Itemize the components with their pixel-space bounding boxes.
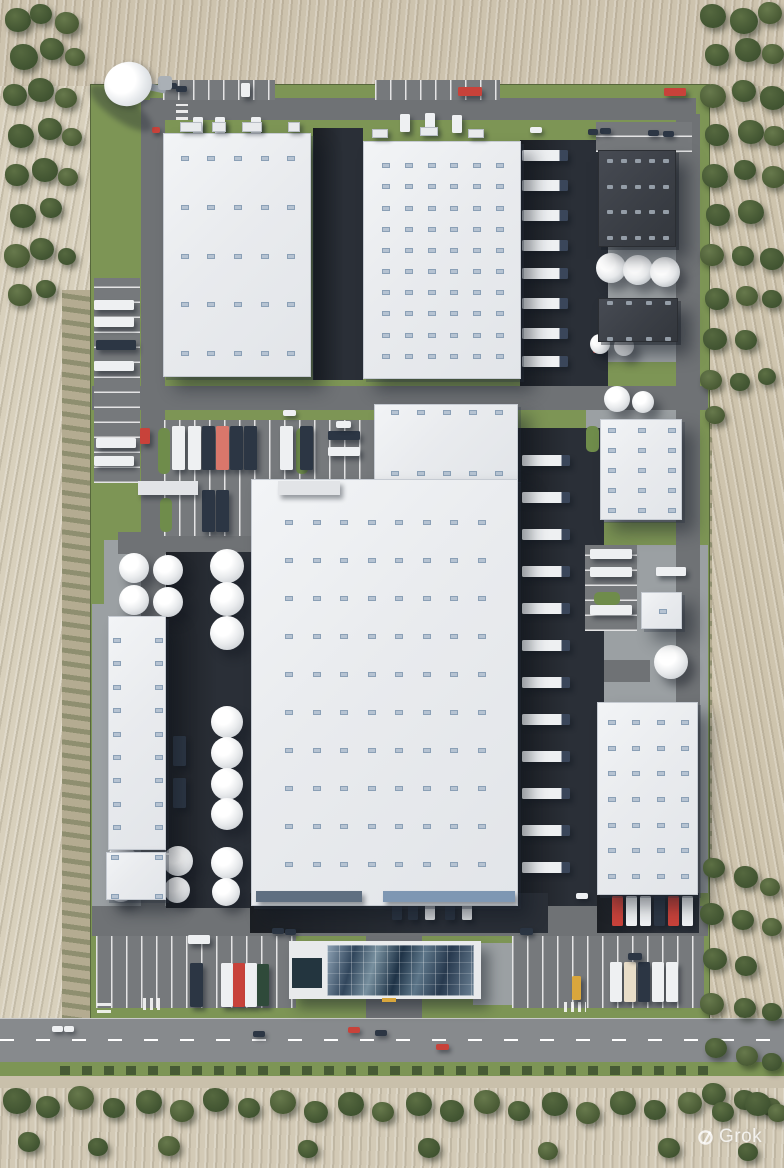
- truck: [241, 83, 250, 97]
- truck: [682, 896, 693, 926]
- skylight: [382, 354, 390, 359]
- skylight: [428, 269, 436, 274]
- truck: [328, 431, 360, 440]
- skylight: [681, 848, 689, 853]
- truck: [216, 426, 229, 470]
- tree: [32, 158, 58, 182]
- tree: [706, 204, 730, 226]
- building-warehouse-central-main: [251, 479, 518, 906]
- skylight: [395, 862, 403, 867]
- skylight: [478, 558, 486, 563]
- car: [520, 928, 533, 935]
- truck: [626, 896, 637, 926]
- skylight: [473, 290, 481, 295]
- skylight: [234, 351, 242, 356]
- car: [663, 131, 674, 137]
- skylight: [285, 710, 293, 715]
- storage-tank: [211, 768, 243, 800]
- skylight: [382, 206, 390, 211]
- skylight: [113, 685, 121, 690]
- building-warehouse-mid-right: [600, 419, 682, 520]
- skylight: [668, 448, 676, 453]
- tree: [304, 1101, 328, 1123]
- skylight: [382, 163, 390, 168]
- grok-ring-icon: [697, 1129, 714, 1146]
- truck: [590, 567, 632, 577]
- skylight: [469, 410, 477, 415]
- skylight: [382, 269, 390, 274]
- tree: [40, 198, 62, 218]
- truck: [96, 340, 136, 350]
- skylight: [450, 248, 458, 253]
- truck: [230, 426, 243, 470]
- dock-apron: [313, 128, 363, 380]
- skylight: [428, 311, 436, 316]
- skylight: [608, 823, 616, 828]
- tree: [736, 286, 758, 306]
- storage-tank: [654, 645, 688, 679]
- tree: [55, 88, 77, 108]
- skylight: [313, 558, 321, 563]
- parking-lot: [596, 122, 692, 152]
- skylight: [423, 520, 431, 525]
- rooftop-vent: [212, 122, 226, 132]
- tree: [703, 328, 727, 350]
- skylight: [428, 184, 436, 189]
- tree: [62, 128, 82, 146]
- tree: [760, 248, 784, 270]
- skylight: [473, 333, 481, 338]
- tree: [88, 1138, 108, 1156]
- skylight: [635, 185, 641, 189]
- storage-tank: [650, 257, 680, 287]
- skylight: [496, 290, 504, 295]
- skylight: [428, 333, 436, 338]
- skylight: [496, 333, 504, 338]
- crosswalk: [176, 104, 188, 120]
- truck: [522, 714, 570, 725]
- skylight: [261, 205, 269, 210]
- tree: [474, 1090, 500, 1114]
- green-island: [158, 428, 170, 474]
- truck: [522, 529, 570, 540]
- skylight: [450, 558, 458, 563]
- tree: [768, 1104, 784, 1122]
- skylight: [417, 471, 425, 476]
- truck: [452, 115, 462, 133]
- skylight: [285, 748, 293, 753]
- tree: [734, 160, 756, 180]
- skylight: [405, 184, 413, 189]
- skylight: [646, 337, 652, 341]
- car: [648, 130, 659, 136]
- storage-tank: [210, 549, 244, 583]
- tree: [644, 1100, 666, 1120]
- tree: [38, 118, 62, 140]
- dock-canopy: [278, 481, 340, 495]
- skylight: [423, 824, 431, 829]
- car: [176, 86, 187, 92]
- skylight: [313, 786, 321, 791]
- dock-canopy: [383, 891, 515, 902]
- skylight: [234, 254, 242, 259]
- tree: [610, 1091, 636, 1115]
- truck: [522, 862, 570, 873]
- skylight: [285, 786, 293, 791]
- building-warehouse-top-left: [163, 133, 311, 377]
- storage-tank: [211, 706, 243, 738]
- tree: [542, 1092, 568, 1116]
- entrance-gate-barrier: [382, 998, 396, 1002]
- skylight: [368, 634, 376, 639]
- tree: [8, 284, 32, 306]
- truck: [610, 962, 622, 1002]
- rooftop-vent: [242, 122, 262, 132]
- tree: [103, 1098, 125, 1118]
- skylight: [478, 672, 486, 677]
- building-warehouse-central-extension: [374, 404, 518, 480]
- skylight: [155, 778, 163, 783]
- skylight: [657, 848, 665, 853]
- skylight: [368, 710, 376, 715]
- skylight: [395, 634, 403, 639]
- entrance-dark-block: [292, 958, 322, 988]
- truck: [654, 896, 665, 926]
- tree: [762, 44, 784, 64]
- skylight: [113, 638, 121, 643]
- skylight: [450, 862, 458, 867]
- tree: [732, 80, 756, 102]
- skylight: [607, 301, 613, 305]
- truck: [190, 963, 203, 1007]
- skylight: [287, 156, 295, 161]
- skylight: [155, 708, 163, 713]
- skylight: [657, 746, 665, 751]
- tree: [30, 4, 52, 24]
- tree: [703, 948, 727, 970]
- tree: [28, 78, 54, 102]
- skylight: [663, 210, 669, 214]
- tree: [238, 1098, 260, 1118]
- skylight: [608, 720, 616, 725]
- car: [530, 127, 542, 133]
- storage-tank: [596, 253, 626, 283]
- skylight: [405, 311, 413, 316]
- skylight: [207, 254, 215, 259]
- skylight: [473, 248, 481, 253]
- storage-tank: [211, 737, 243, 769]
- skylight: [668, 508, 676, 513]
- truck: [590, 605, 632, 615]
- skylight: [340, 748, 348, 753]
- skylight: [113, 802, 121, 807]
- skylight: [313, 672, 321, 677]
- skylight: [155, 638, 163, 643]
- skylight: [663, 236, 669, 240]
- skylight: [405, 227, 413, 232]
- skylight: [495, 410, 503, 415]
- tree: [136, 1090, 162, 1114]
- skylight: [405, 248, 413, 253]
- tree: [758, 2, 782, 24]
- tree: [5, 8, 31, 32]
- tree: [68, 1086, 94, 1110]
- tree: [3, 1088, 31, 1114]
- skylight: [113, 661, 121, 666]
- skylight: [681, 746, 689, 751]
- truck: [522, 268, 568, 279]
- truck: [94, 317, 134, 327]
- truck: [640, 896, 651, 926]
- skylight: [450, 311, 458, 316]
- truck: [221, 963, 233, 1007]
- skylight: [638, 428, 646, 433]
- skylight: [181, 205, 189, 210]
- storage-tank: [163, 846, 193, 876]
- tree: [298, 1140, 318, 1158]
- tree: [3, 84, 27, 106]
- truck: [280, 426, 293, 470]
- storage-tank: [153, 555, 183, 585]
- skylight: [657, 874, 665, 879]
- skylight: [608, 508, 616, 513]
- tree: [705, 124, 729, 146]
- tree: [700, 903, 724, 925]
- truck: [522, 150, 568, 161]
- tree: [8, 124, 34, 148]
- car: [600, 128, 611, 134]
- skylight: [234, 156, 242, 161]
- tree: [732, 246, 754, 266]
- skylight: [478, 710, 486, 715]
- tree: [170, 1100, 194, 1122]
- skylight: [113, 755, 121, 760]
- skylight: [382, 227, 390, 232]
- rooftop-vent: [180, 122, 202, 132]
- skylight: [473, 206, 481, 211]
- dock-canopy: [256, 891, 362, 902]
- skylight: [635, 159, 641, 163]
- skylight: [423, 786, 431, 791]
- tree: [58, 248, 76, 265]
- skylight: [382, 311, 390, 316]
- road-center-line: [0, 1039, 784, 1041]
- tree: [705, 44, 729, 66]
- skylight: [113, 732, 121, 737]
- skylight: [665, 301, 671, 305]
- tree: [508, 1101, 530, 1121]
- tree: [758, 368, 776, 385]
- building-small-building-right: [641, 592, 682, 629]
- tree: [762, 1003, 782, 1021]
- truck: [94, 456, 134, 466]
- skylight: [313, 710, 321, 715]
- tree: [338, 1092, 364, 1116]
- skylight: [368, 672, 376, 677]
- skylight: [428, 290, 436, 295]
- tree: [5, 164, 29, 186]
- truck: [328, 447, 360, 456]
- skylight: [423, 596, 431, 601]
- tree: [406, 1092, 432, 1116]
- skylight: [478, 748, 486, 753]
- skylight: [608, 448, 616, 453]
- skylight: [450, 596, 458, 601]
- skylight: [428, 206, 436, 211]
- skylight: [340, 558, 348, 563]
- tree: [762, 166, 784, 188]
- skylight: [368, 786, 376, 791]
- skylight: [608, 797, 616, 802]
- tree: [700, 4, 726, 28]
- truck: [522, 751, 570, 762]
- public-road: [0, 1018, 784, 1064]
- car: [375, 1030, 387, 1036]
- skylight: [450, 354, 458, 359]
- car: [436, 1044, 449, 1050]
- skylight: [313, 634, 321, 639]
- skylight: [607, 210, 613, 214]
- storage-tank: [632, 391, 654, 413]
- truck: [668, 896, 679, 926]
- skylight: [478, 634, 486, 639]
- skylight: [113, 825, 121, 830]
- skylight: [207, 351, 215, 356]
- skylight: [340, 786, 348, 791]
- skylight: [632, 848, 640, 853]
- skylight: [405, 333, 413, 338]
- skylight: [368, 520, 376, 525]
- skylight: [681, 720, 689, 725]
- car: [52, 1026, 63, 1032]
- car: [152, 127, 160, 133]
- skylight: [285, 596, 293, 601]
- truck: [173, 778, 186, 808]
- storage-tank: [210, 582, 244, 616]
- skylight: [632, 746, 640, 751]
- skylight: [478, 596, 486, 601]
- skylight: [626, 301, 632, 305]
- tree: [36, 1096, 60, 1118]
- skylight: [155, 802, 163, 807]
- tree: [10, 44, 38, 70]
- skylight: [621, 210, 627, 214]
- truck: [652, 962, 664, 1002]
- skylight: [234, 302, 242, 307]
- skylight: [313, 520, 321, 525]
- skylight: [428, 163, 436, 168]
- skylight: [340, 634, 348, 639]
- skylight: [646, 301, 652, 305]
- tree: [736, 1046, 758, 1066]
- skylight: [391, 410, 399, 415]
- skylight: [638, 448, 646, 453]
- skylight: [478, 520, 486, 525]
- skylight: [340, 520, 348, 525]
- tree: [18, 1132, 40, 1152]
- building-warehouse-left-long: [108, 616, 166, 850]
- grok-watermark: Grok: [697, 1126, 762, 1148]
- skylight: [608, 746, 616, 751]
- skylight: [657, 771, 665, 776]
- skylight: [607, 159, 613, 163]
- skylight: [608, 848, 616, 853]
- rooftop-vent: [420, 127, 438, 136]
- skylight: [285, 672, 293, 677]
- truck: [233, 963, 245, 1007]
- skylight: [663, 185, 669, 189]
- tree: [735, 38, 761, 62]
- skylight: [632, 771, 640, 776]
- truck: [522, 825, 570, 836]
- truck: [257, 964, 269, 1006]
- tree: [762, 290, 782, 308]
- crosswalk: [564, 1002, 586, 1012]
- skylight: [155, 825, 163, 830]
- skylight: [382, 290, 390, 295]
- storage-tank: [211, 847, 243, 879]
- crosswalk: [143, 998, 163, 1010]
- tree: [55, 12, 79, 34]
- skylight: [450, 269, 458, 274]
- truck: [173, 736, 186, 766]
- skylight: [155, 755, 163, 760]
- skylight: [340, 596, 348, 601]
- skylight: [405, 354, 413, 359]
- skylight: [496, 184, 504, 189]
- skylight: [473, 184, 481, 189]
- tree: [703, 858, 725, 878]
- skylight: [608, 488, 616, 493]
- dock-canopy: [138, 481, 198, 495]
- rooftop-vent: [468, 129, 484, 138]
- skylight: [607, 337, 613, 341]
- tree: [538, 1142, 558, 1160]
- storage-tank: [119, 585, 149, 615]
- truck: [94, 300, 134, 310]
- skylight: [657, 720, 665, 725]
- truck: [300, 426, 313, 470]
- car: [628, 953, 642, 960]
- truck: [245, 963, 257, 1007]
- skylight: [428, 354, 436, 359]
- skylight: [340, 672, 348, 677]
- grok-watermark-text: Grok: [719, 1126, 762, 1148]
- skylight: [423, 634, 431, 639]
- truck: [522, 328, 568, 339]
- skylight: [428, 227, 436, 232]
- skylight: [155, 732, 163, 737]
- rooftop-vent: [372, 129, 388, 138]
- skylight: [668, 428, 676, 433]
- skylight: [681, 874, 689, 879]
- skylight: [450, 824, 458, 829]
- skylight: [635, 210, 641, 214]
- skylight: [668, 488, 676, 493]
- skylight: [450, 163, 458, 168]
- truck: [522, 298, 568, 309]
- building-building-left-small: [106, 852, 166, 900]
- tree: [700, 370, 722, 390]
- skylight: [261, 156, 269, 161]
- truck: [666, 962, 678, 1002]
- tree: [30, 238, 54, 260]
- tree: [738, 200, 764, 224]
- tree: [418, 1138, 440, 1158]
- skylight: [423, 558, 431, 563]
- skylight: [450, 206, 458, 211]
- skylight: [313, 824, 321, 829]
